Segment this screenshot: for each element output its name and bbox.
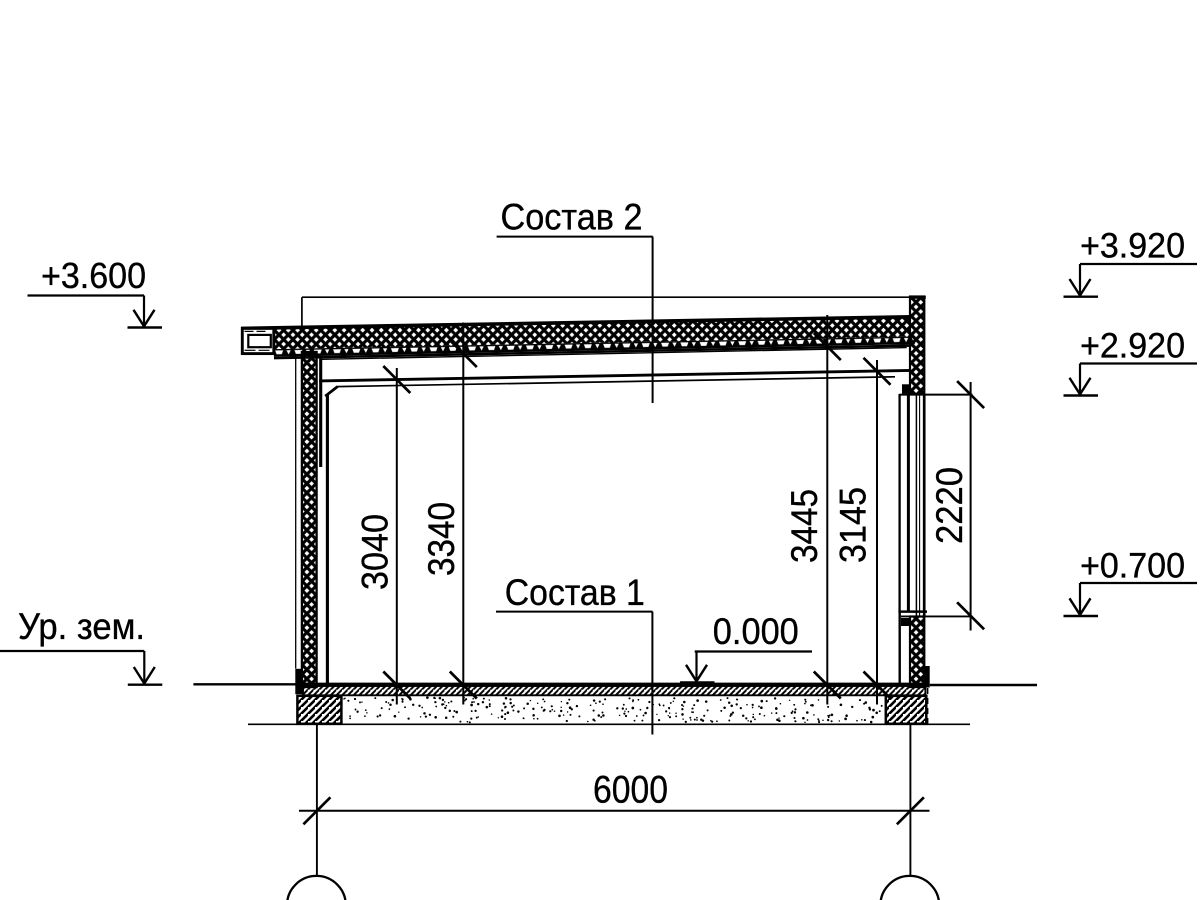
- svg-text:6000: 6000: [593, 769, 668, 812]
- svg-text:3145: 3145: [833, 487, 874, 563]
- svg-text:+3.920: +3.920: [1080, 227, 1185, 266]
- svg-text:Состав 1: Состав 1: [505, 572, 645, 613]
- svg-text:3340: 3340: [421, 502, 462, 576]
- svg-text:+3.600: +3.600: [41, 255, 146, 296]
- svg-text:3040: 3040: [355, 514, 396, 590]
- svg-text:+0.700: +0.700: [1080, 547, 1185, 586]
- svg-text:0.000: 0.000: [713, 610, 799, 652]
- svg-text:3445: 3445: [784, 489, 825, 563]
- svg-text:Состав 2: Состав 2: [501, 196, 643, 237]
- svg-text:+2.920: +2.920: [1080, 327, 1185, 366]
- svg-text:Ур. зем.: Ур. зем.: [18, 606, 145, 647]
- svg-text:2220: 2220: [929, 467, 970, 544]
